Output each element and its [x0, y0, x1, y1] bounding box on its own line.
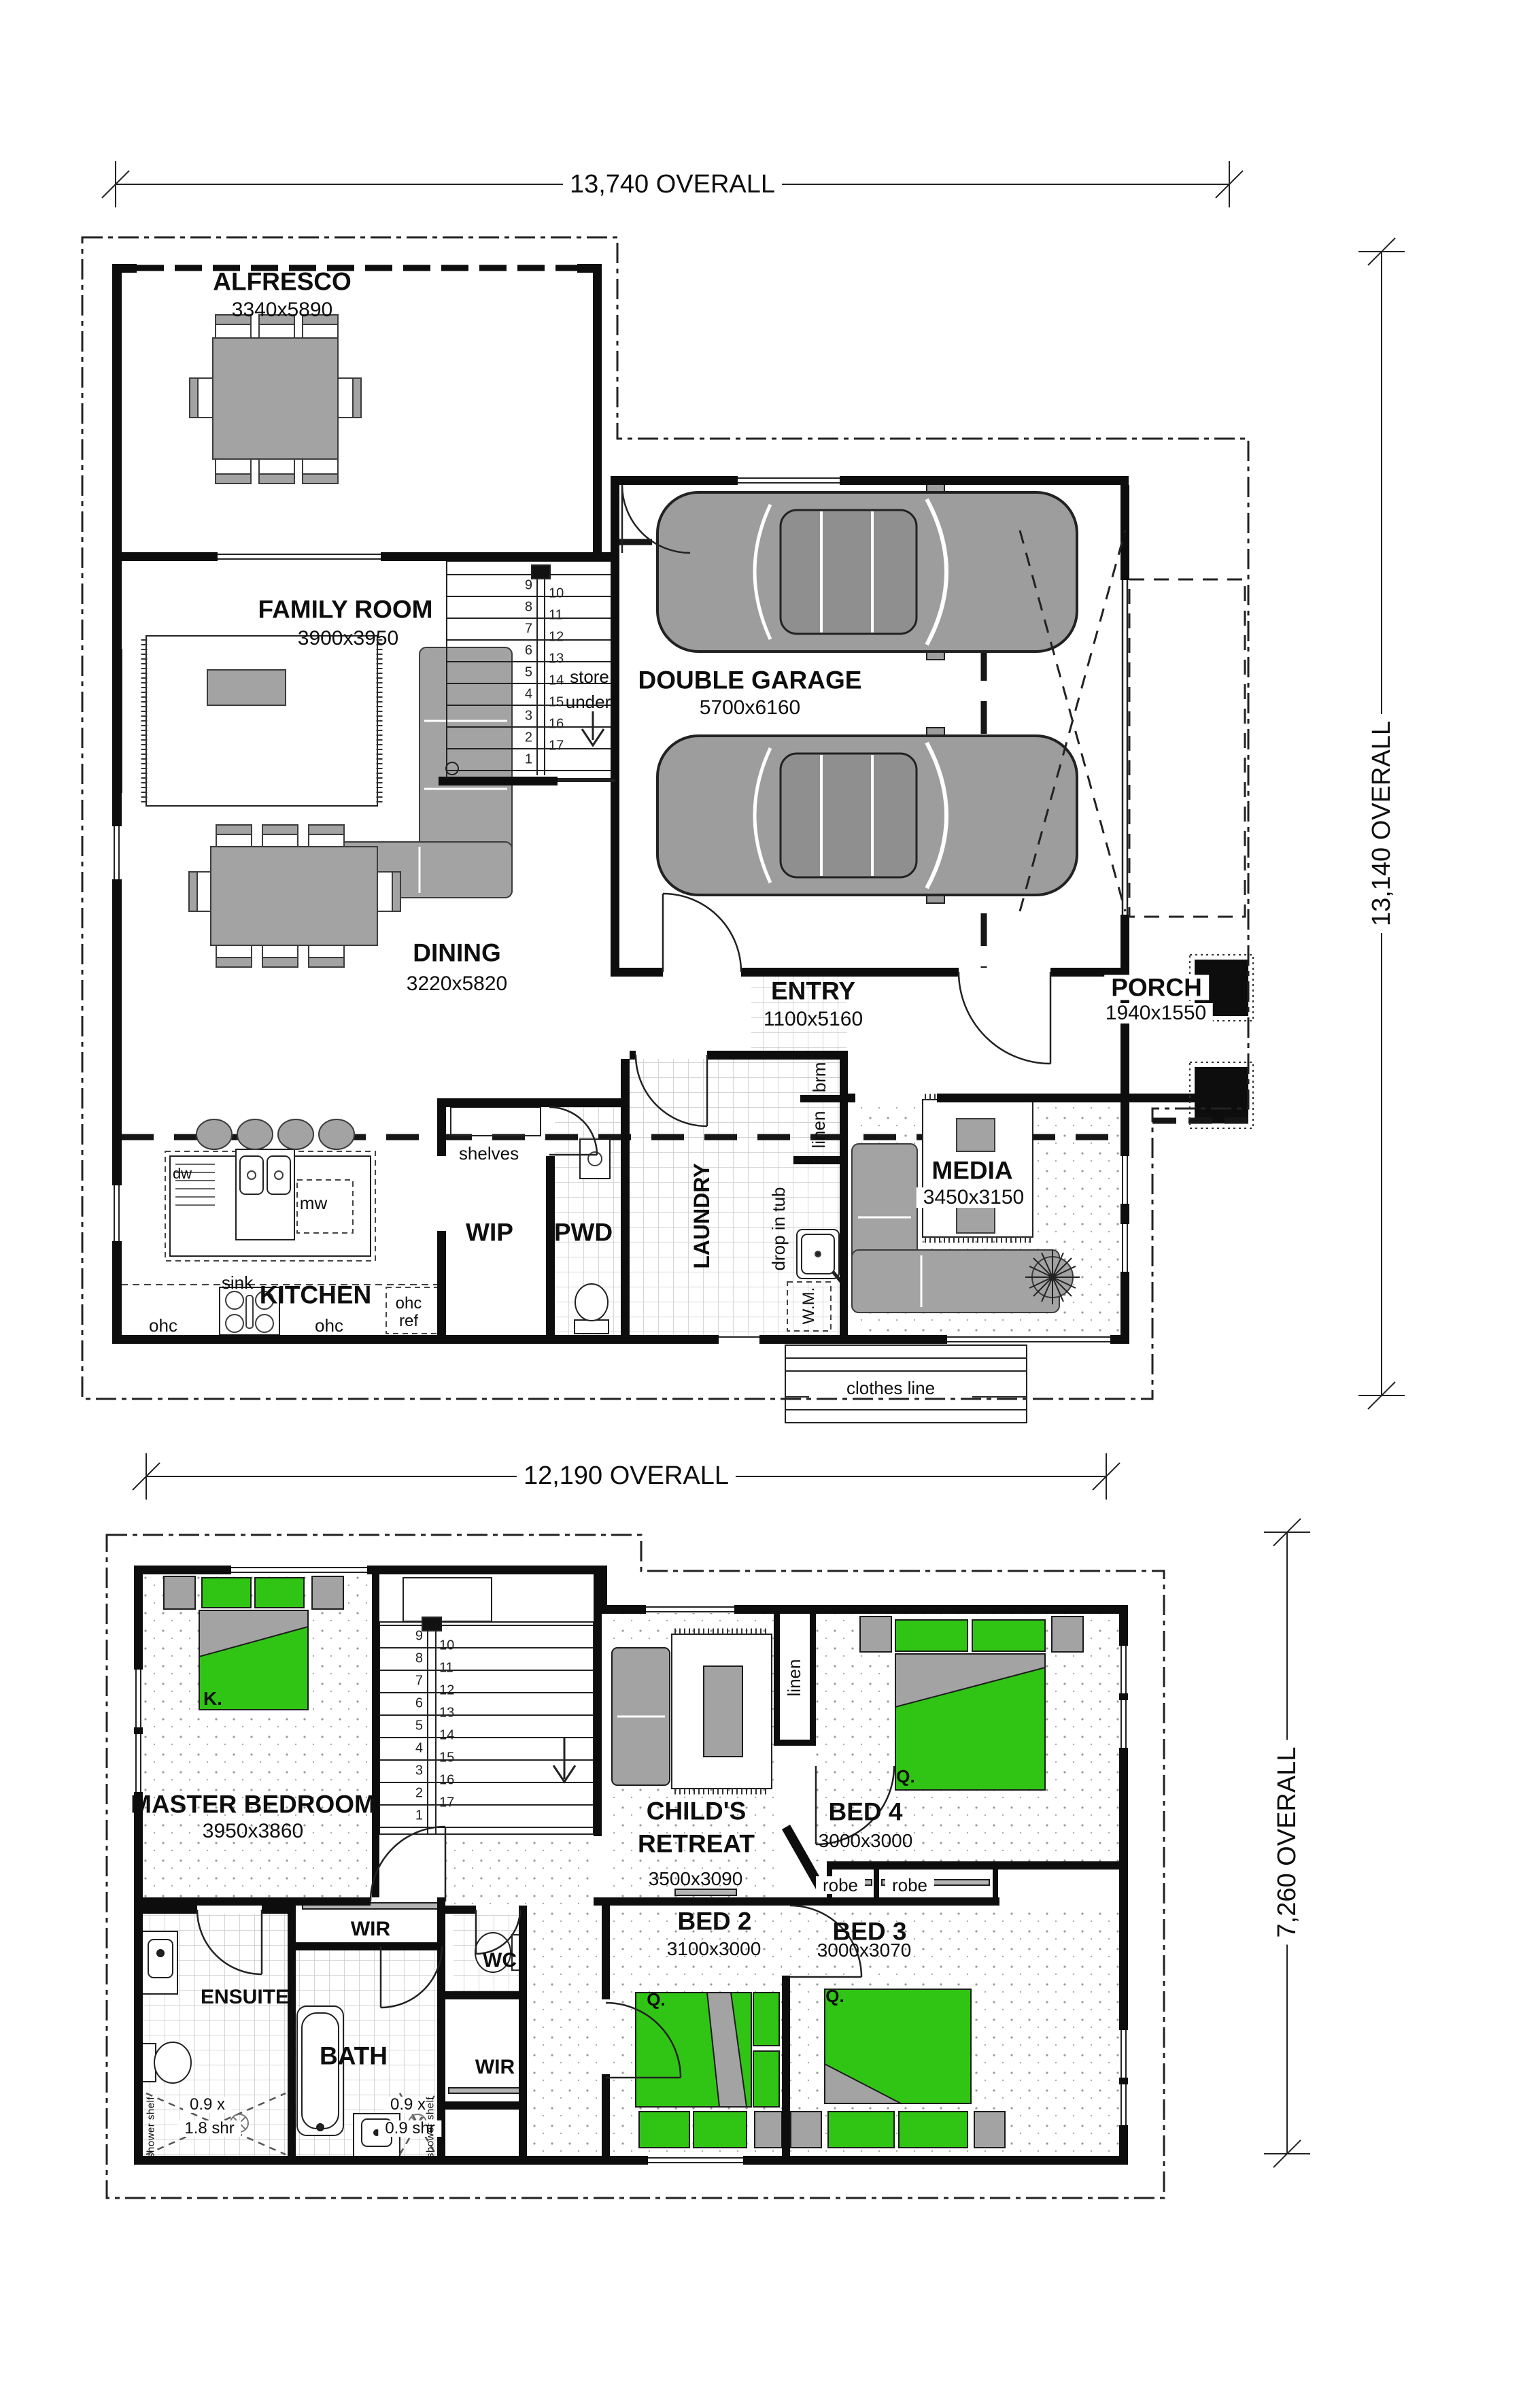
note-robe-left: robe	[816, 1876, 865, 1894]
note-ens-shower-2: 1.8 shr	[177, 2120, 241, 2137]
room-retreat-size: 3500x3090	[649, 1870, 743, 1889]
room-media-size: 3450x3150	[917, 1187, 1031, 1208]
dim-overall-width-ground: 13,740 OVERALL	[563, 171, 782, 197]
note-dw: dw	[173, 1166, 192, 1181]
room-dining-size: 3220x5820	[407, 974, 507, 994]
room-bed2-size: 3100x3000	[667, 1940, 762, 1959]
note-ohc-left: ohc	[149, 1317, 177, 1334]
note-store: store	[570, 668, 609, 686]
room-family-size: 3900x3950	[298, 628, 398, 649]
room-wir-master: WIR	[351, 1919, 390, 1940]
room-pwd: PWD	[554, 1220, 613, 1245]
room-garage-size: 5700x6160	[700, 698, 800, 718]
note-q-bed4: Q.	[896, 1767, 914, 1785]
note-brm: brm	[810, 1062, 828, 1093]
note-shelves: shelves	[459, 1145, 519, 1162]
room-retreat-line1: CHILD'S	[647, 1799, 747, 1824]
room-media: MEDIA	[925, 1158, 1019, 1183]
stairs-upper	[379, 1617, 594, 1834]
room-dining: DINING	[413, 941, 501, 966]
room-master-size: 3950x3860	[203, 1821, 303, 1842]
room-wip: WIP	[466, 1220, 513, 1245]
note-ohc-ref-top: ohc	[396, 1296, 422, 1312]
note-ohc-ref-bottom: ref	[399, 1313, 418, 1330]
note-robe-right: robe	[885, 1876, 934, 1894]
room-porch-size: 1940x1550	[1099, 1003, 1213, 1024]
room-garage: DOUBLE GARAGE	[638, 668, 862, 693]
room-ensuite: ENSUITE	[201, 1987, 289, 2008]
dim-overall-height-ground: 13,140 OVERALL	[1369, 714, 1394, 933]
room-kitchen: KITCHEN	[260, 1283, 371, 1308]
note-linen-upper: linen	[785, 1659, 803, 1697]
note-sink: sink	[222, 1274, 253, 1291]
room-entry-size: 1100x5160	[764, 1009, 863, 1030]
note-shower-shelf-right: shower shelf	[426, 2097, 436, 2158]
room-entry: ENTRY	[771, 979, 855, 1004]
room-bed2: BED 2	[678, 1909, 752, 1934]
room-laundry: LAUNDRY	[691, 1163, 713, 1268]
room-bed3-size: 3000x3070	[817, 1941, 912, 1960]
room-master: MASTER BEDROOM	[131, 1792, 375, 1817]
note-mw: mw	[300, 1194, 327, 1212]
note-shower-shelf-left: shower shelf	[146, 2097, 156, 2158]
room-bath: BATH	[320, 2044, 388, 2069]
room-wir-bed2: WIR	[475, 2057, 515, 2078]
note-clothes-line: clothes line	[846, 1379, 935, 1397]
room-wc: WC	[483, 1950, 517, 1971]
note-ens-shower-1: 0.9 x	[183, 2097, 232, 2113]
room-alfresco: ALFRESCO	[213, 269, 352, 294]
room-retreat-line2: RETREAT	[638, 1831, 755, 1857]
note-linen-ground: linen	[810, 1111, 827, 1149]
note-under: under	[566, 693, 611, 711]
dim-overall-width-upper: 12,190 OVERALL	[517, 1463, 736, 1489]
note-wm: W.M.	[801, 1287, 817, 1325]
room-bed4: BED 4	[829, 1799, 903, 1825]
note-ohc-right: ohc	[315, 1317, 343, 1334]
note-drop-in-tub: drop in tub	[770, 1187, 787, 1271]
room-alfresco-size: 3340x5890	[232, 300, 332, 320]
room-bed4-size: 3000x3000	[819, 1831, 913, 1850]
floor-plan-sheet: 13,740 OVERALL 13,140 OVERALL 12,190 OVE…	[0, 0, 1540, 2385]
room-porch: PORCH	[1104, 975, 1209, 1000]
note-q-bed2: Q.	[647, 1991, 665, 2008]
note-q-bed3: Q.	[825, 1987, 844, 2005]
note-bed-king: K.	[203, 1689, 222, 1708]
room-family: FAMILY ROOM	[258, 597, 433, 622]
dim-overall-height-upper: 7,260 OVERALL	[1274, 1740, 1300, 1945]
